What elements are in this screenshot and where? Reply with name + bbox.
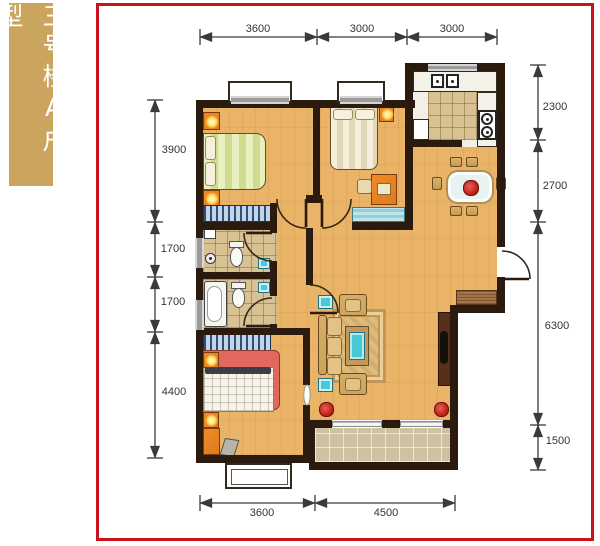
dim-label: 3600 <box>246 23 270 35</box>
sofa-cushion <box>327 337 342 356</box>
wall <box>270 261 277 296</box>
doormat-icon <box>456 290 497 305</box>
kitchen-tile-floor <box>428 92 477 140</box>
wall <box>313 100 320 195</box>
potted-plant-icon <box>319 402 334 417</box>
dining-chair-icon <box>466 157 478 167</box>
coffee-table-top <box>349 332 365 360</box>
wash-basin-icon <box>258 258 270 269</box>
coffee-table-icon <box>345 326 369 366</box>
dining-chair-icon <box>450 157 462 167</box>
pillow-icon <box>205 162 216 186</box>
window-glazing <box>340 96 382 104</box>
potted-plant-icon <box>434 402 449 417</box>
side-table-icon <box>318 295 333 309</box>
dining-chair-icon <box>432 177 442 190</box>
dim-label: 1700 <box>161 296 185 308</box>
pillow-icon <box>333 109 353 120</box>
pillow-icon <box>355 109 375 120</box>
armchair-cushion <box>345 378 361 391</box>
window-icon <box>225 463 292 489</box>
side-table-icon <box>318 378 333 392</box>
sofa-cushion <box>327 317 342 336</box>
dining-chair-icon <box>466 206 478 216</box>
wall <box>196 100 203 463</box>
wall <box>412 140 462 147</box>
pillow-icon <box>205 136 216 160</box>
wall <box>450 305 505 313</box>
table-flower-icon <box>463 180 479 196</box>
wall <box>309 462 457 470</box>
kitchen-sink-icon <box>446 74 459 88</box>
lamp-glow <box>205 414 218 427</box>
wall <box>303 328 310 385</box>
dim-label: 2700 <box>543 180 567 192</box>
nightstand-lamp-icon <box>379 106 394 122</box>
wall <box>443 420 457 428</box>
plan-type-badge: 三号楼A户型 <box>9 3 53 186</box>
wall <box>196 455 310 463</box>
dim-label: 1500 <box>546 435 570 447</box>
dresser-icon <box>203 428 220 455</box>
wall <box>306 228 313 285</box>
desk-icon <box>371 174 397 205</box>
window-icon <box>195 238 204 268</box>
shower-icon <box>205 253 216 264</box>
dim-label: 3000 <box>350 23 374 35</box>
cabinet-icon <box>352 207 405 222</box>
wall <box>306 420 332 428</box>
dim-label: 1700 <box>161 243 185 255</box>
dim-label: 2300 <box>543 101 567 113</box>
kitchen-sink-icon <box>431 74 444 88</box>
tv-icon <box>440 331 448 364</box>
dim-label: 3000 <box>440 23 464 35</box>
sofa-cushion <box>327 357 342 375</box>
window-icon <box>195 300 204 330</box>
stove-burner-icon <box>481 126 493 138</box>
shower-dot <box>209 257 212 260</box>
wardrobe-icon <box>203 205 277 222</box>
armchair-cushion <box>345 299 361 312</box>
sliding-door-icon <box>400 421 443 427</box>
bathtub-icon <box>204 281 227 327</box>
lamp-glow <box>205 354 218 367</box>
window-glazing <box>231 96 289 104</box>
nightstand-lamp-icon <box>203 412 219 428</box>
balcony-tile-floor <box>315 428 450 462</box>
lamp-glow <box>381 108 394 121</box>
desk-top <box>377 183 391 195</box>
wardrobe-icon <box>203 334 271 351</box>
vent-box-icon <box>204 229 216 239</box>
dim-label: 4400 <box>162 386 186 398</box>
dim-label: 4500 <box>374 507 398 519</box>
wall <box>306 195 322 203</box>
nightstand-lamp-icon <box>203 352 219 368</box>
window-inner <box>231 469 288 485</box>
wall <box>196 328 303 335</box>
wall <box>497 63 505 247</box>
toilet-bowl <box>232 288 245 308</box>
wash-basin-icon <box>258 282 270 293</box>
lamp-glow <box>205 192 219 206</box>
sliding-door-icon <box>332 421 382 427</box>
lamp-glow <box>205 115 219 129</box>
dim-label: 6300 <box>545 320 569 332</box>
wall <box>196 222 277 230</box>
dim-label: 3600 <box>250 507 274 519</box>
wall <box>450 313 458 470</box>
toilet-icon <box>231 282 246 309</box>
sofa-icon <box>318 315 327 375</box>
floor-plan-page: 三号楼A户型 <box>0 0 600 546</box>
window-icon <box>428 64 477 71</box>
dim-label: 3900 <box>162 144 186 156</box>
desk-chair-icon <box>357 179 372 194</box>
pillow-icon <box>205 367 271 374</box>
wall <box>382 420 400 428</box>
armchair-icon <box>339 294 367 316</box>
wall <box>352 222 413 230</box>
wall <box>196 272 277 279</box>
fridge-icon <box>413 119 429 140</box>
toilet-icon <box>229 241 244 268</box>
armchair-icon <box>339 373 367 395</box>
nightstand-lamp-icon <box>203 112 220 130</box>
stove-burner-icon <box>481 113 493 125</box>
toilet-bowl <box>230 247 243 267</box>
dining-chair-icon <box>450 206 462 216</box>
bathtub-inner <box>207 286 222 322</box>
